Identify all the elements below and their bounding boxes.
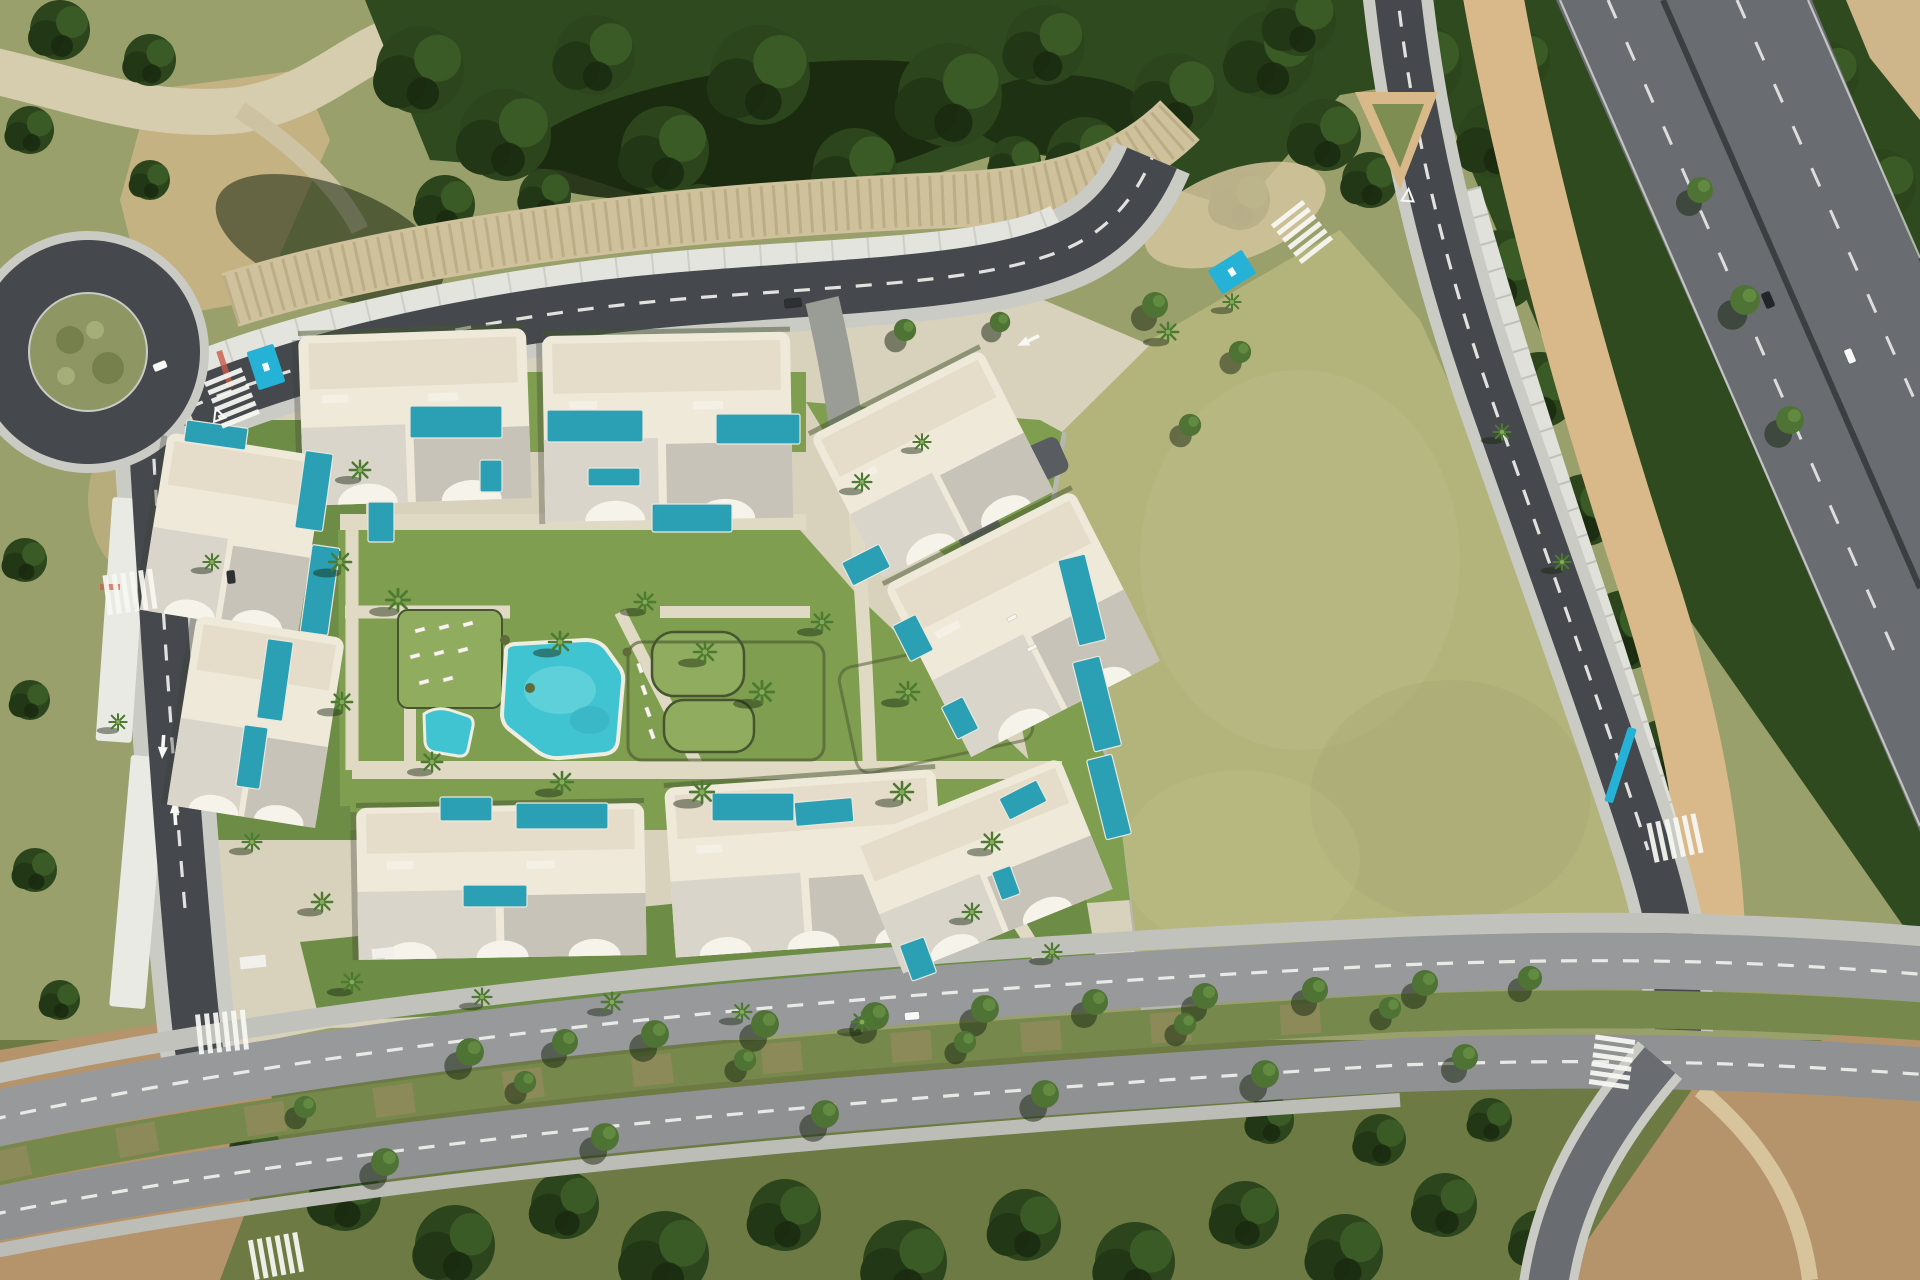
umbrella bbox=[525, 683, 535, 693]
swimming-pool bbox=[547, 410, 643, 442]
swimming-pool bbox=[716, 414, 800, 444]
swimming-pool bbox=[480, 460, 502, 492]
aerial-photo bbox=[0, 0, 1920, 1280]
umbrella bbox=[500, 635, 510, 645]
swimming-pool bbox=[588, 468, 640, 486]
roundabout bbox=[0, 266, 174, 438]
swimming-pool bbox=[368, 502, 394, 542]
villa-cluster bbox=[134, 431, 326, 635]
aerial-scene bbox=[0, 0, 1920, 1280]
swimming-pool bbox=[712, 793, 794, 821]
vehicle bbox=[226, 570, 235, 584]
swimming-pool bbox=[410, 406, 502, 438]
villa-cluster bbox=[161, 614, 345, 828]
swimming-pool bbox=[516, 803, 608, 829]
vehicle bbox=[904, 1011, 920, 1020]
communal-pool bbox=[502, 640, 623, 758]
swimming-pool bbox=[463, 885, 527, 907]
umbrella bbox=[623, 648, 632, 657]
vehicle bbox=[784, 298, 802, 309]
lounger-lawn bbox=[398, 610, 502, 708]
swimming-pool bbox=[652, 504, 732, 532]
swimming-pool bbox=[794, 798, 854, 827]
kids-pool bbox=[424, 709, 473, 756]
swimming-pool bbox=[440, 797, 492, 821]
